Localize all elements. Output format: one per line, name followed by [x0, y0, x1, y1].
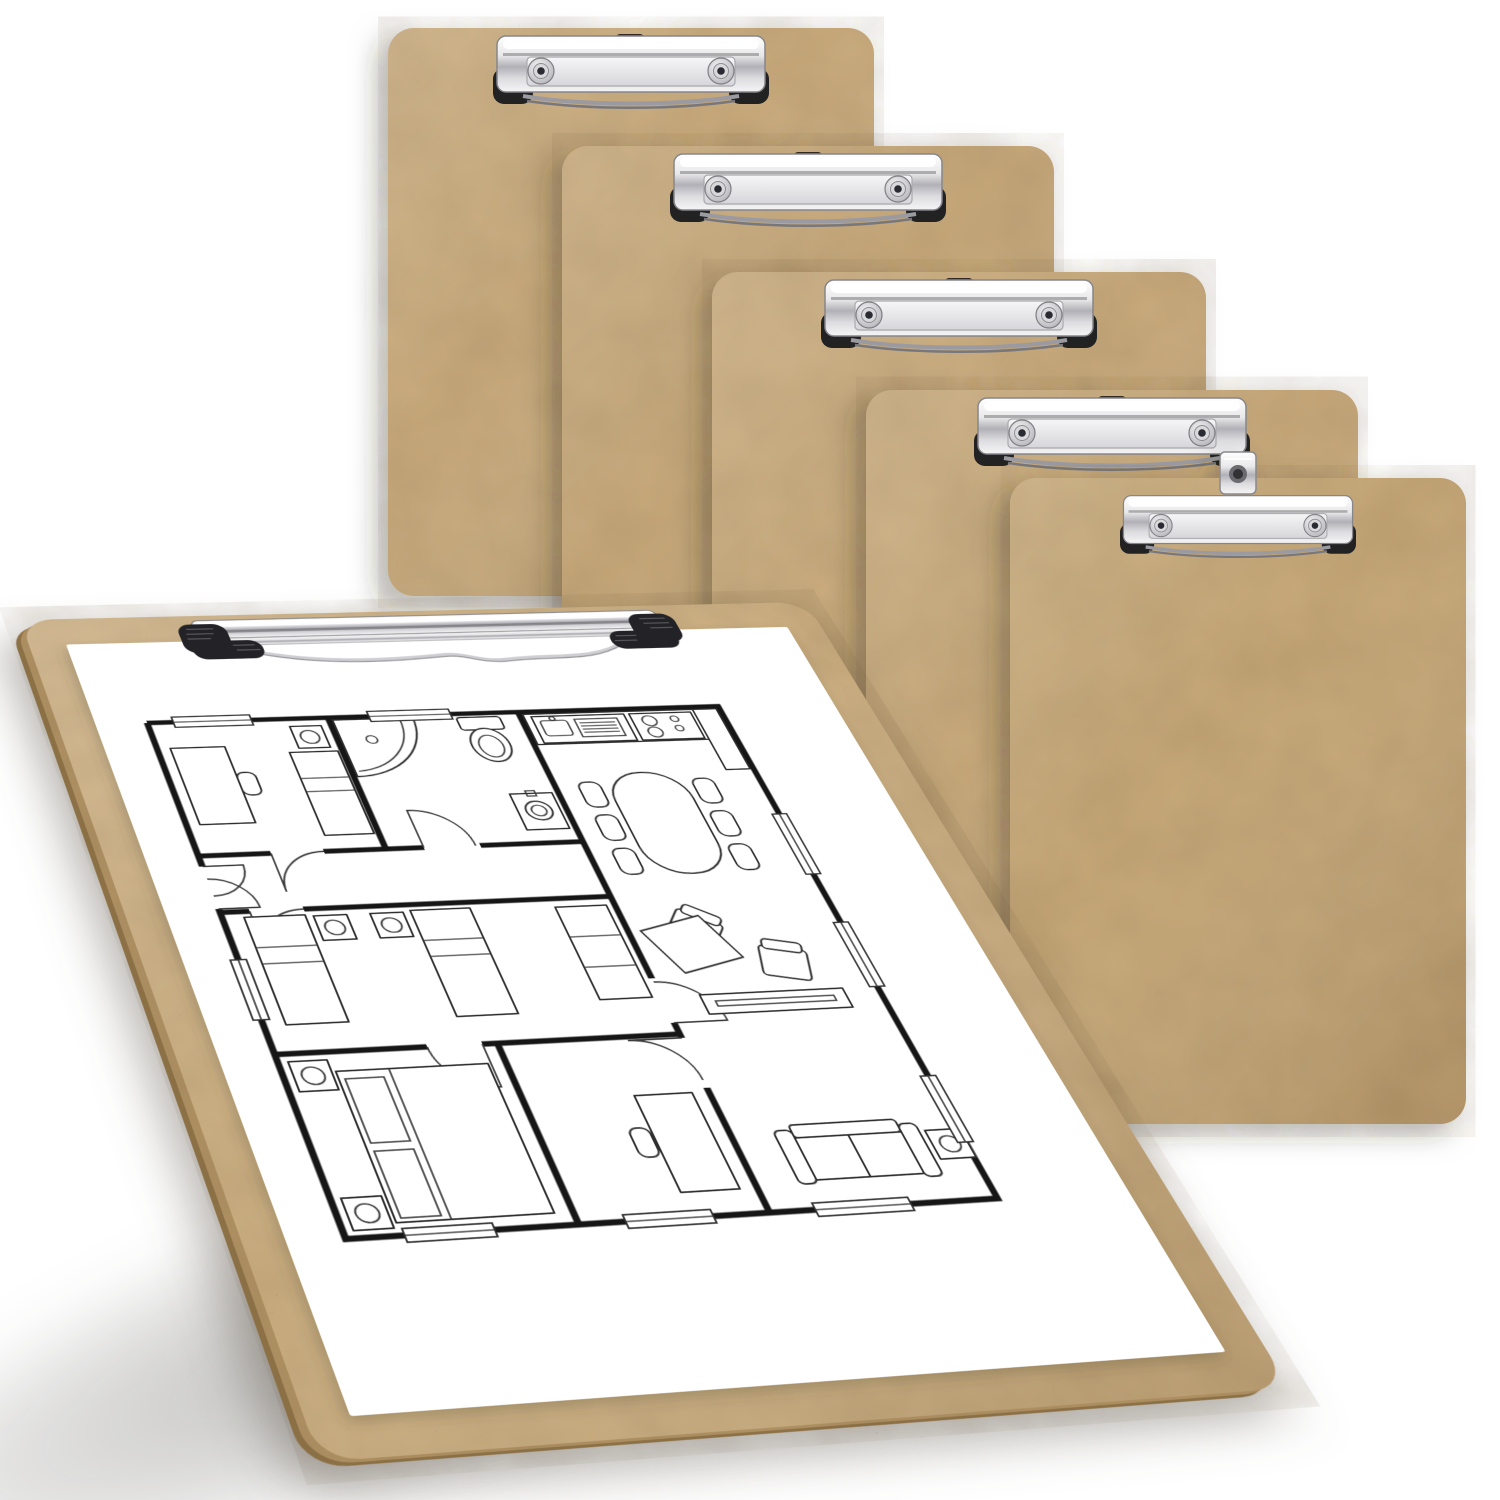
window [367, 709, 453, 721]
sofa [770, 1118, 944, 1184]
window [171, 715, 253, 727]
hanger-tab-icon [1220, 452, 1256, 494]
clipboard-5 [1010, 452, 1466, 1124]
kitchen-sink-icon [531, 714, 637, 743]
product-photo-scene [0, 0, 1500, 1500]
stove-icon [629, 712, 705, 740]
